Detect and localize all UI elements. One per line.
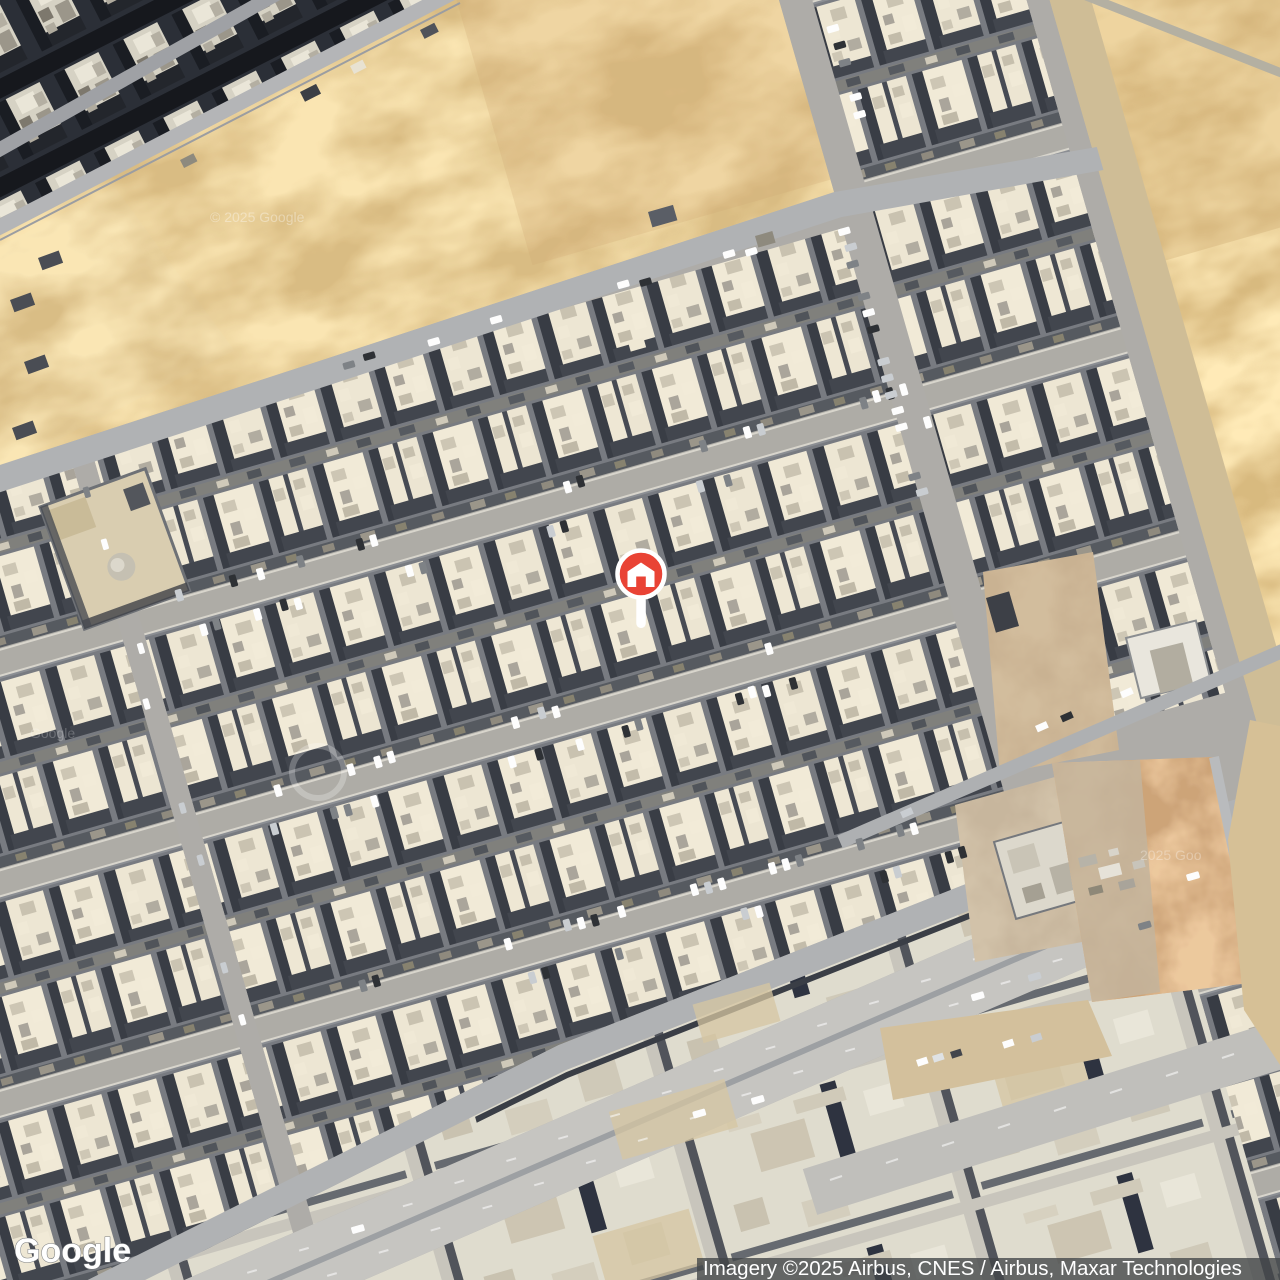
svg-text:2025 Goo: 2025 Goo (1140, 847, 1202, 863)
svg-text:Imagery ©2025 Airbus, CNES / A: Imagery ©2025 Airbus, CNES / Airbus, Max… (703, 1257, 1242, 1280)
svg-text:Google: Google (30, 725, 75, 741)
svg-text:© 2025 Google: © 2025 Google (210, 209, 305, 225)
svg-text:Google: Google (14, 1232, 131, 1270)
